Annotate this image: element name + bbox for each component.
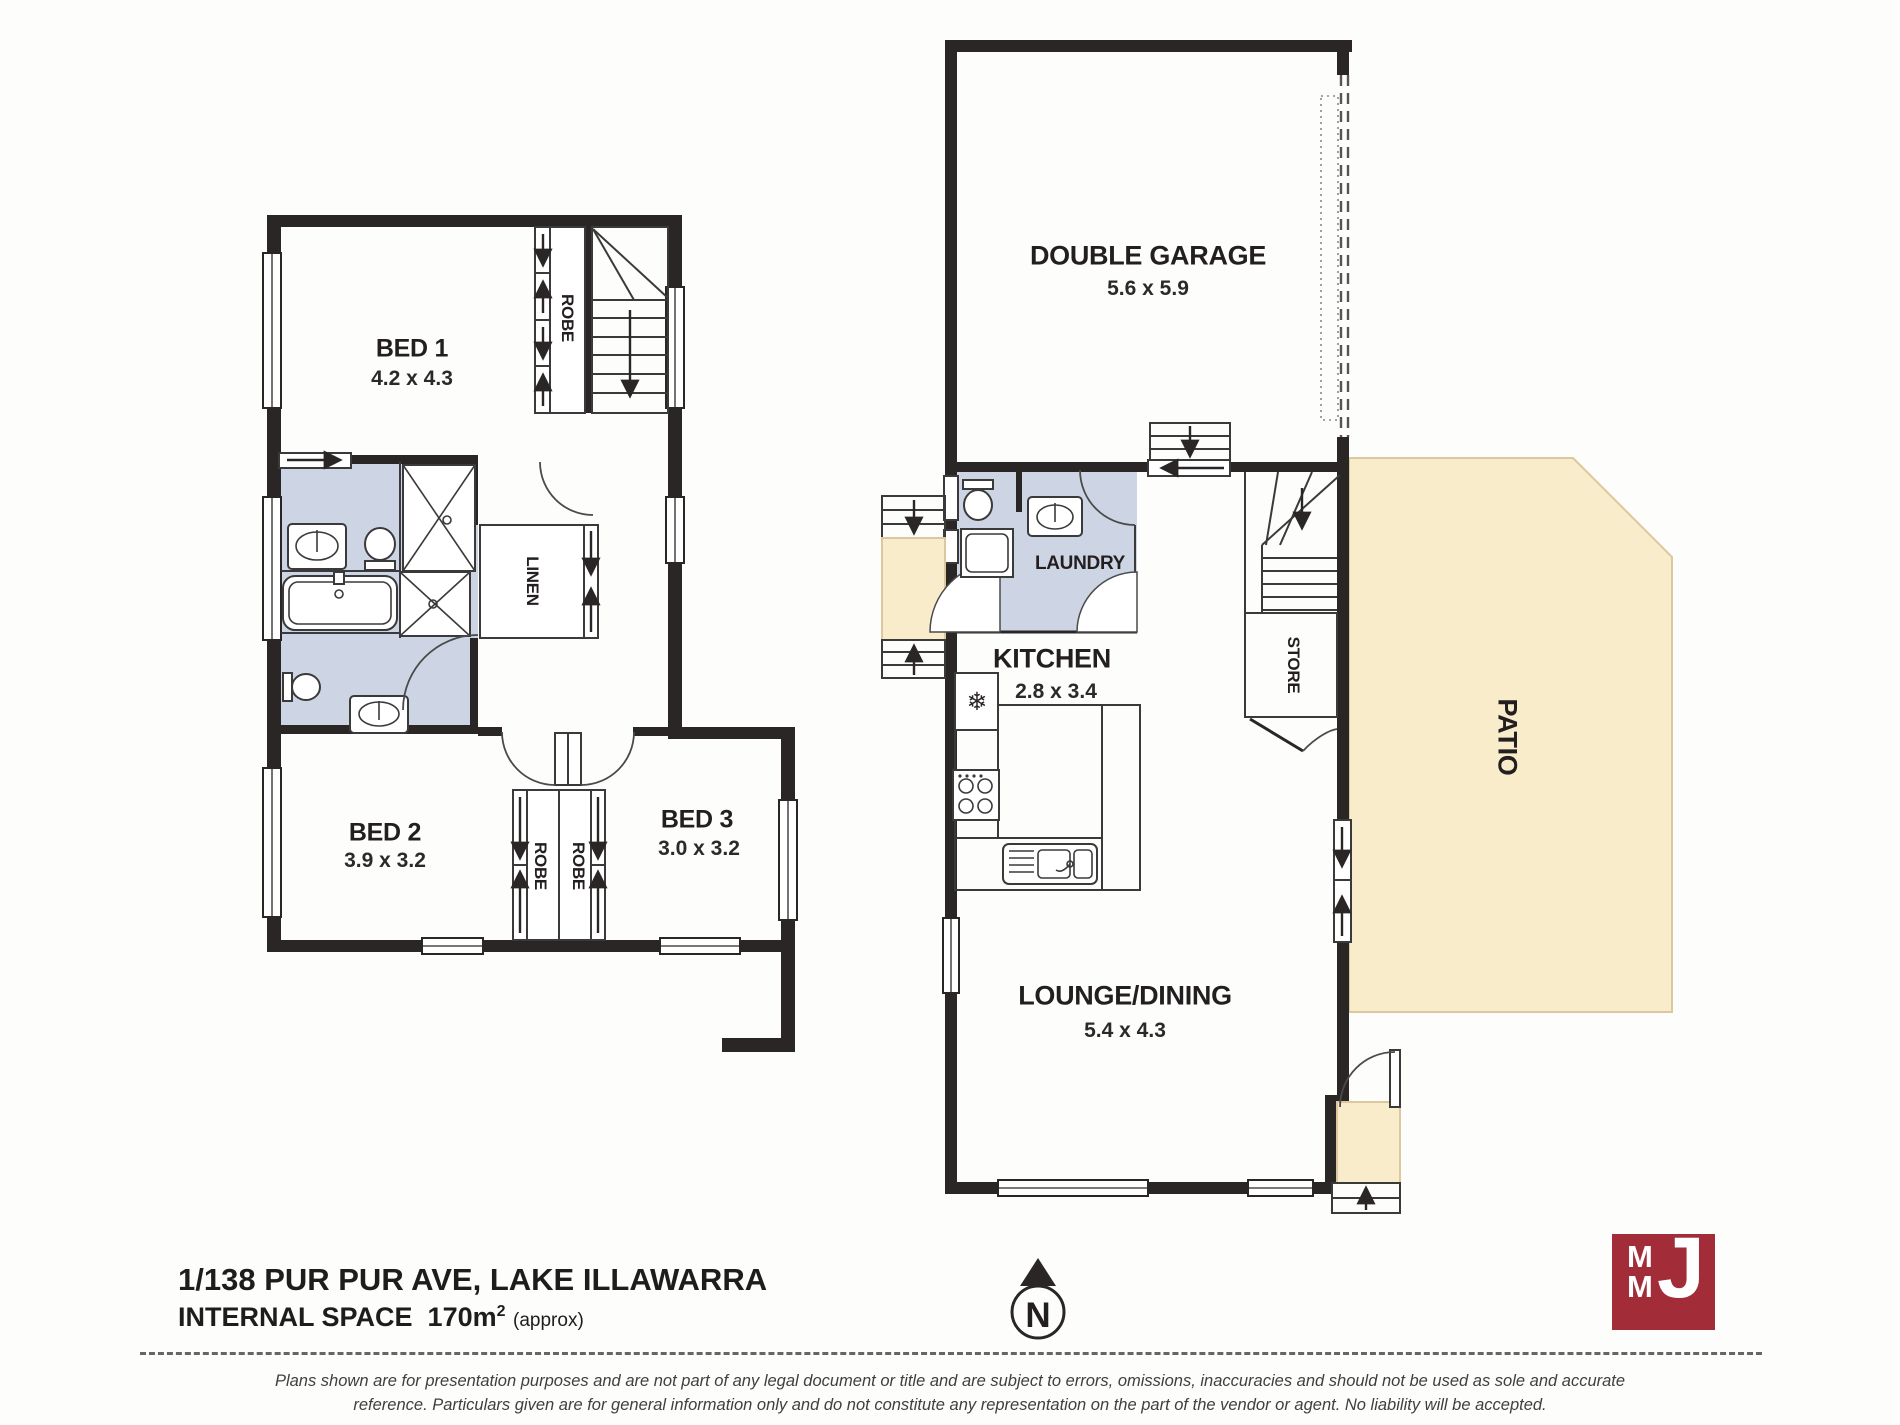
label-bed3: BED 3: [661, 806, 733, 835]
disclaimer-line2: reference. Particulars given are for gen…: [0, 1396, 1900, 1415]
internal-space-label: INTERNAL SPACE: [178, 1302, 413, 1332]
north-label: N: [1025, 1296, 1050, 1336]
logo-letter-j: J: [1657, 1225, 1705, 1311]
agency-logo: M M J: [1612, 1234, 1715, 1330]
external-stairs: [882, 496, 945, 678]
label-robe-right: ROBE: [568, 842, 588, 890]
disclaimer-line1: Plans shown are for presentation purpose…: [0, 1372, 1900, 1391]
bath: [283, 572, 397, 630]
label-patio: PATIO: [1492, 699, 1523, 776]
label-lounge-dims: 5.4 x 4.3: [1084, 1019, 1166, 1043]
floorplan-drawing: [0, 0, 1900, 1425]
garage-steps: [1148, 423, 1230, 476]
internal-space-sup: 2: [497, 1303, 506, 1320]
shower-lower: [400, 572, 470, 636]
logo-letter-m2: M: [1627, 1271, 1653, 1302]
floorplan-canvas: BED 1 4.2 x 4.3 BED 2 3.9 x 3.2 BED 3 3.…: [0, 0, 1900, 1425]
bathroom-sink: [350, 696, 408, 733]
label-kitchen-dims: 2.8 x 3.4: [1015, 680, 1097, 704]
robe-cupboards-bed2-bed3: [513, 790, 605, 940]
shower-upper: [403, 465, 475, 571]
fridge-icon: ❄: [967, 687, 988, 717]
label-bed3-dims: 3.0 x 3.2: [658, 837, 740, 861]
label-bed1: BED 1: [376, 335, 448, 364]
label-bed2-dims: 3.9 x 3.2: [344, 849, 426, 873]
ground-floor-plan: [882, 40, 1672, 1213]
rear-door: [944, 476, 958, 563]
footer-divider: [140, 1352, 1762, 1355]
logo-letter-m1: M: [1627, 1241, 1653, 1272]
laundry-tub: [961, 529, 1013, 577]
label-garage: DOUBLE GARAGE: [1030, 241, 1266, 272]
label-bed1-dims: 4.2 x 4.3: [371, 367, 453, 391]
label-store: STORE: [1283, 637, 1303, 694]
kitchen-stove: [953, 770, 999, 820]
ensuite-toilet: [365, 528, 395, 570]
stairs-ground: [1245, 472, 1340, 613]
label-garage-dims: 5.6 x 5.9: [1107, 277, 1189, 301]
laundry-toilet: [963, 480, 993, 520]
internal-space-value: 170m: [428, 1302, 497, 1332]
label-linen: LINEN: [522, 556, 542, 606]
ensuite-sink: [288, 524, 346, 569]
label-robe-left: ROBE: [530, 842, 550, 890]
property-address: 1/138 PUR PUR AVE, LAKE ILLAWARRA: [178, 1262, 767, 1298]
bathroom-toilet: [283, 673, 320, 701]
garage-door-dashed: [1321, 75, 1348, 437]
laundry-sink: [1028, 497, 1082, 536]
patio-sliding-door: [1334, 820, 1351, 942]
label-bed2: BED 2: [349, 819, 421, 848]
label-lounge: LOUNGE/DINING: [1018, 981, 1232, 1012]
internal-space-note: (approx): [513, 1310, 584, 1331]
label-laundry: LAUNDRY: [1035, 553, 1125, 575]
upper-floor-plan: [263, 215, 797, 1052]
ensuite-sliding-door: [279, 453, 351, 468]
label-kitchen: KITCHEN: [993, 644, 1111, 675]
stairs-upper: [592, 227, 668, 413]
kitchen-sink: [1003, 844, 1097, 884]
label-robe-top: ROBE: [557, 294, 577, 342]
internal-space: INTERNAL SPACE 170m2 (approx): [178, 1302, 584, 1333]
ground-windows: [943, 918, 1313, 1196]
